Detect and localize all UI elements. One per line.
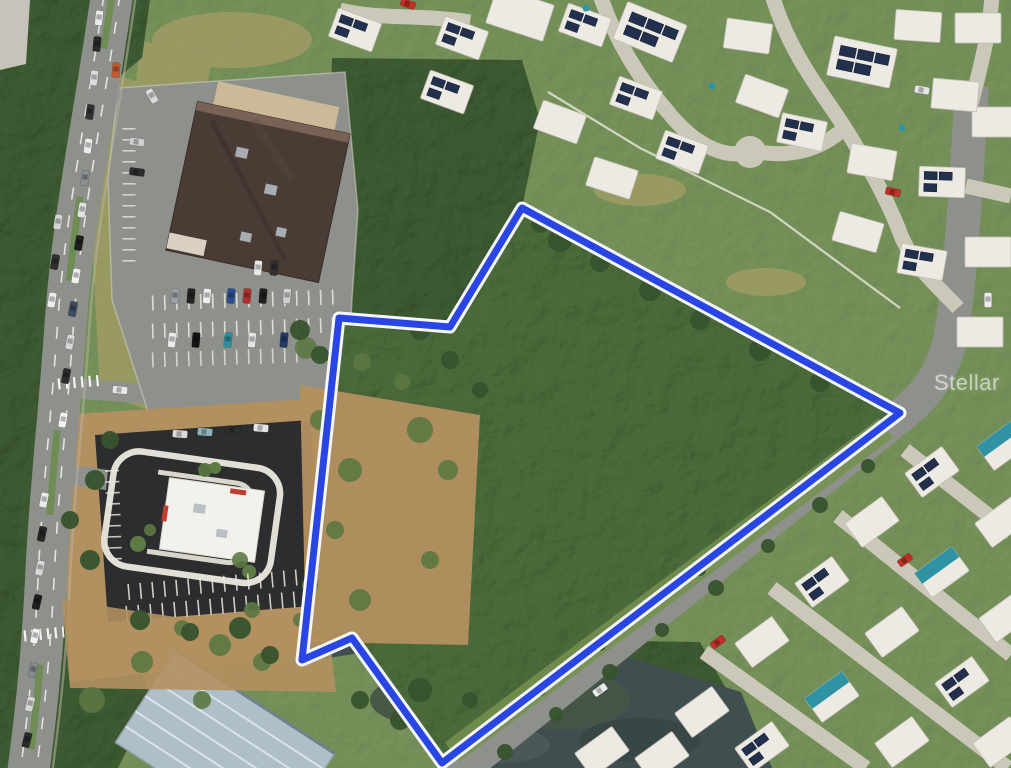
car: [227, 288, 236, 304]
shrub: [407, 417, 433, 443]
tree: [408, 678, 432, 702]
shrub: [144, 524, 156, 536]
shrub: [438, 460, 458, 480]
house: [931, 78, 979, 112]
tree: [441, 351, 459, 369]
shrub: [421, 551, 439, 569]
house: [972, 107, 1011, 137]
restaurant-building: [159, 478, 264, 563]
house: [957, 317, 1003, 347]
shrub: [198, 463, 212, 477]
shrub: [338, 458, 362, 482]
car: [112, 386, 128, 395]
tree: [497, 744, 513, 760]
tree: [290, 320, 310, 340]
tree: [861, 459, 875, 473]
car: [203, 288, 212, 304]
car: [112, 62, 121, 78]
car: [168, 332, 177, 348]
tree: [80, 550, 100, 570]
car: [270, 260, 279, 276]
car: [259, 288, 268, 304]
aerial-scene: [0, 0, 1011, 768]
shrub: [353, 353, 371, 371]
shrub: [349, 589, 371, 611]
car: [253, 424, 268, 433]
car: [92, 36, 101, 52]
house: [723, 18, 773, 54]
car: [94, 10, 103, 26]
shrub: [244, 602, 260, 618]
tree: [812, 497, 828, 513]
shrub: [209, 634, 231, 656]
shrub: [394, 374, 410, 390]
tree: [655, 623, 669, 637]
house: [918, 166, 965, 198]
car: [254, 260, 263, 276]
car: [89, 70, 98, 86]
shrub: [193, 691, 211, 709]
corner-structure: [0, 0, 30, 70]
car: [172, 430, 187, 439]
car: [984, 293, 992, 308]
house: [894, 9, 942, 42]
car: [225, 426, 240, 435]
water-tank: [709, 83, 716, 90]
tree: [351, 691, 369, 709]
shrub: [79, 687, 105, 713]
tree: [761, 539, 775, 553]
tree: [101, 431, 119, 449]
tree: [229, 617, 251, 639]
tree: [311, 346, 329, 364]
shrub: [131, 651, 153, 673]
shrub: [326, 521, 344, 539]
tree: [708, 580, 724, 596]
tree: [261, 646, 279, 664]
cul-de-sac: [734, 136, 766, 168]
tree: [472, 382, 488, 398]
house: [955, 13, 1001, 43]
car: [197, 428, 212, 437]
house: [965, 237, 1011, 267]
tree: [549, 707, 563, 721]
car: [248, 332, 257, 348]
tree: [130, 610, 150, 630]
tree: [181, 623, 199, 641]
car: [283, 288, 292, 304]
car: [243, 288, 252, 304]
car: [187, 288, 196, 304]
car: [224, 332, 233, 348]
car: [192, 332, 201, 348]
water-tank: [899, 125, 906, 132]
car: [280, 332, 289, 348]
tree: [85, 470, 105, 490]
tree: [602, 664, 618, 680]
tree: [462, 692, 478, 708]
water-tank: [583, 5, 590, 12]
shrub: [232, 552, 248, 568]
tree: [61, 511, 79, 529]
car: [171, 288, 180, 304]
aerial-photo: Stellar: [0, 0, 1011, 768]
